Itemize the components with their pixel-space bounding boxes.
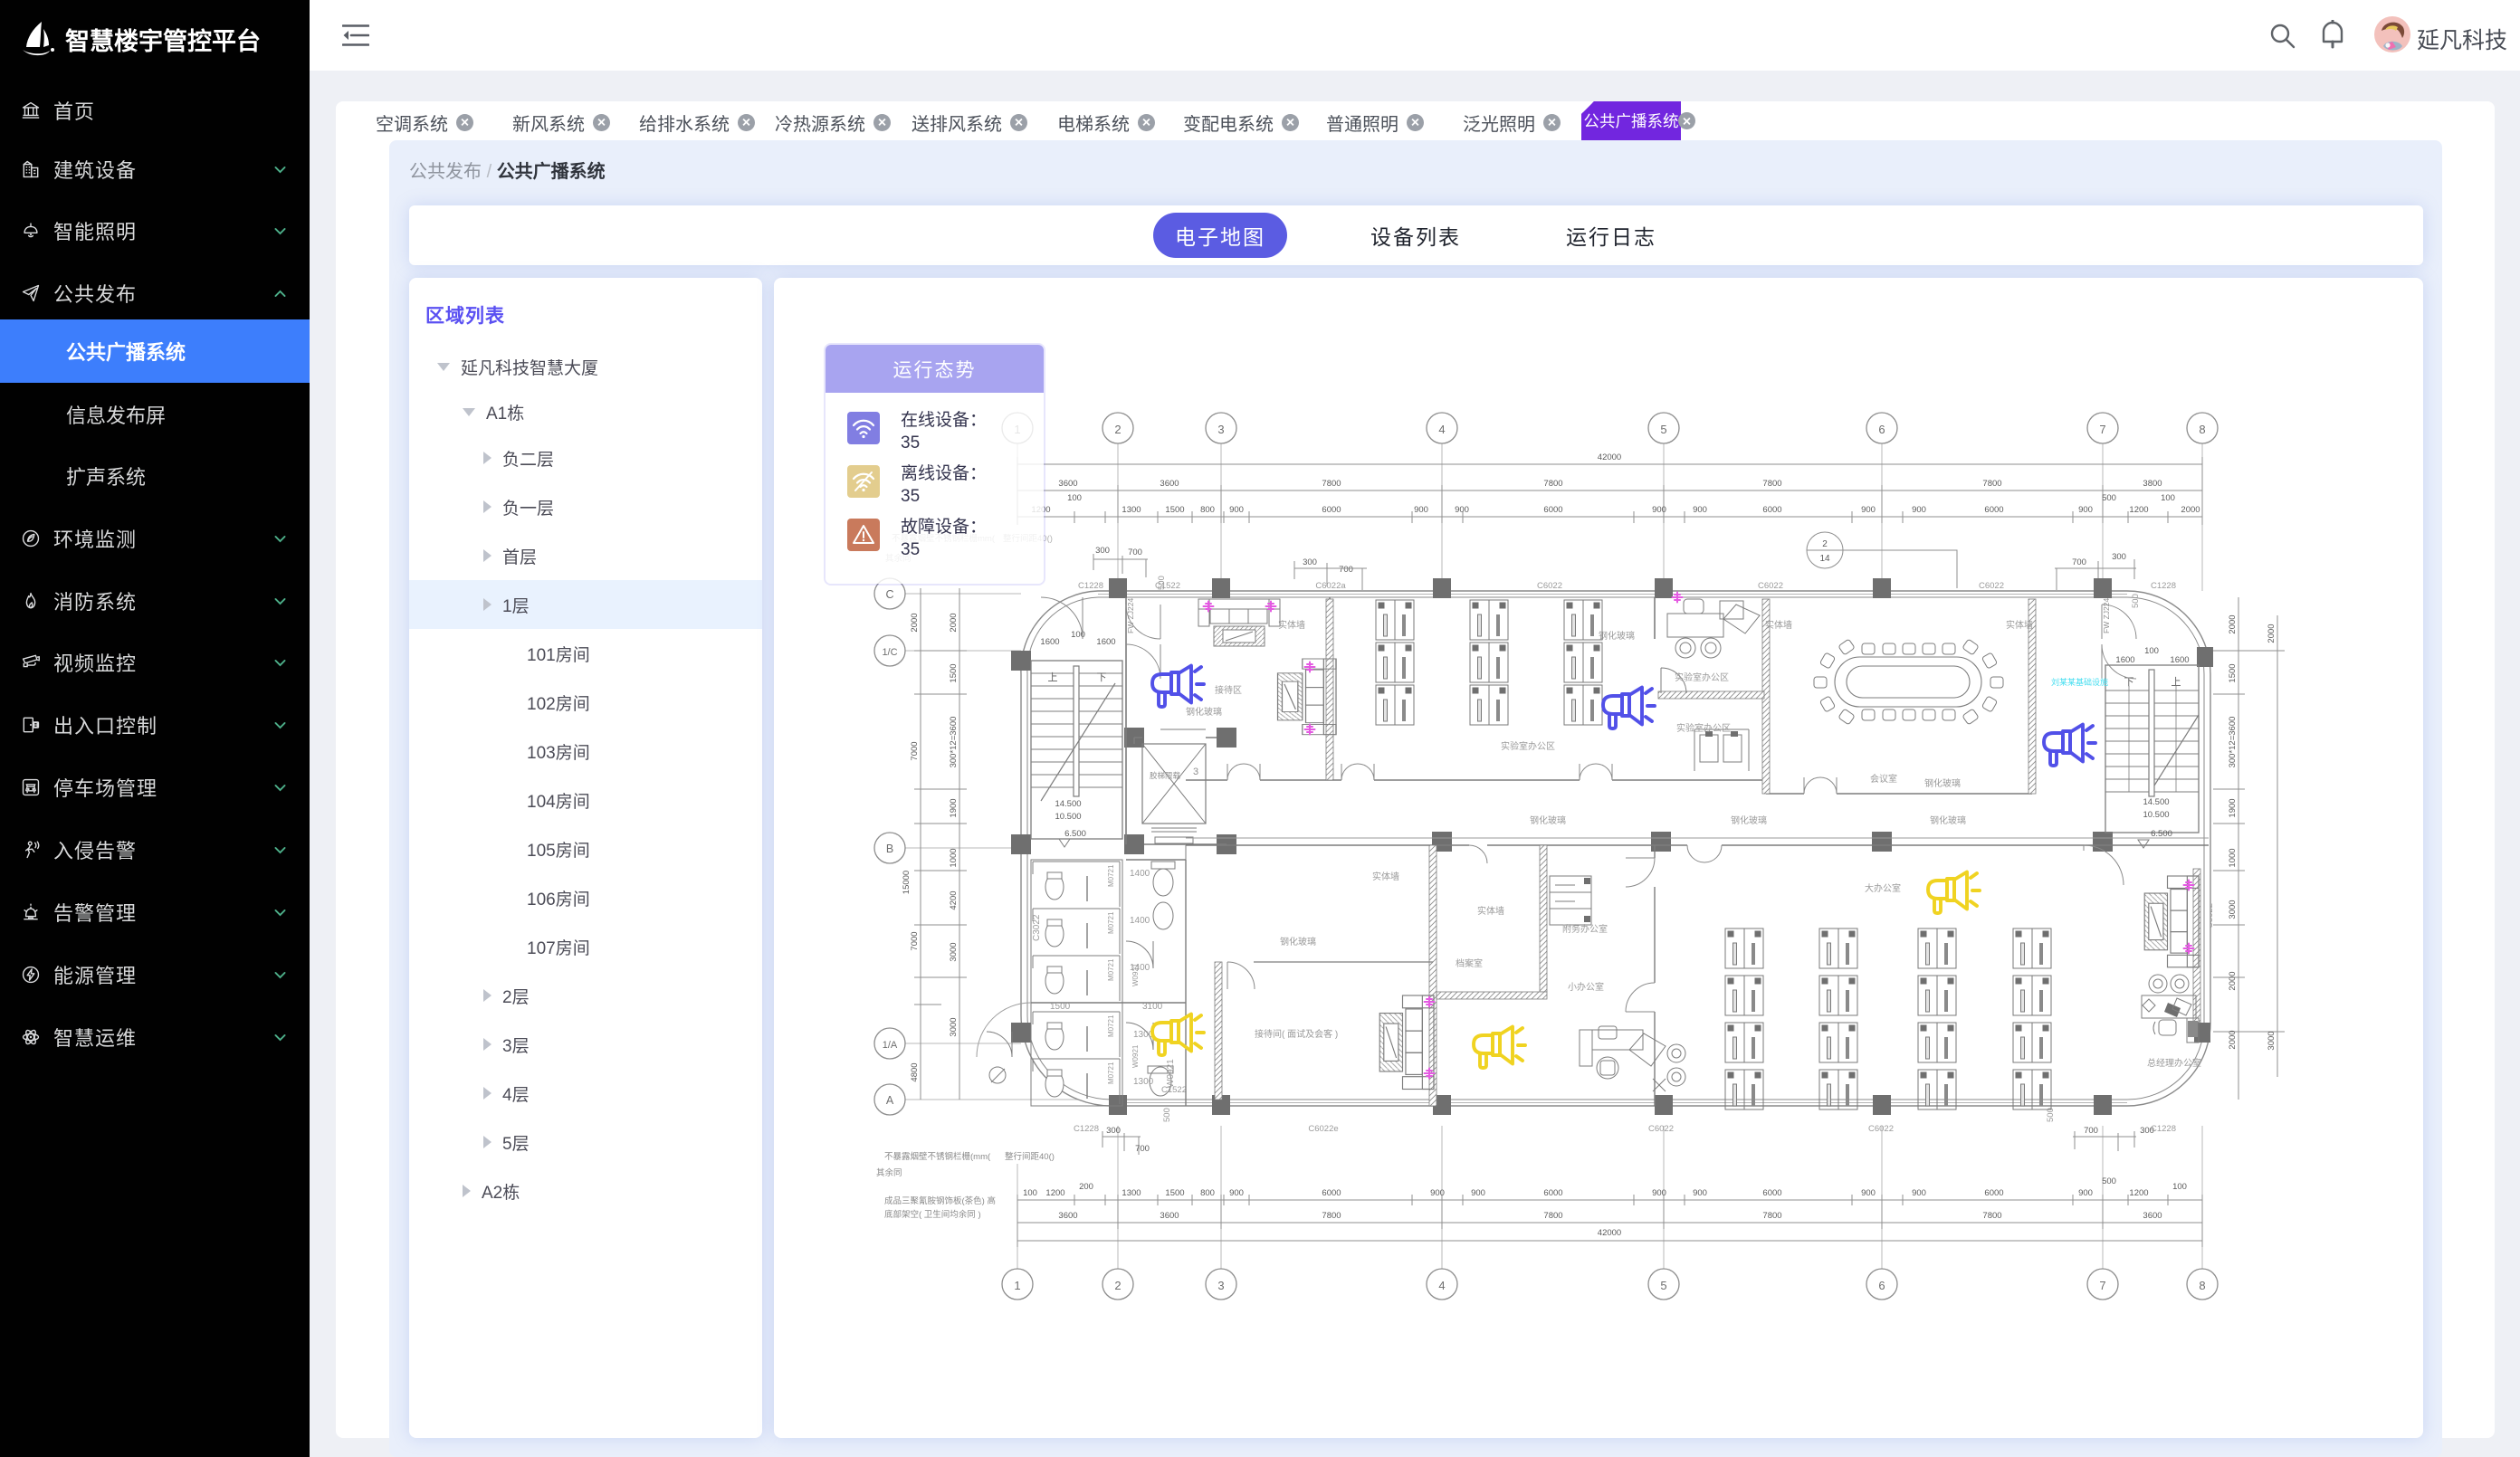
svg-text:下: 下 xyxy=(1097,672,1107,683)
svg-text:C6022: C6022 xyxy=(1868,1124,1894,1134)
svg-text:2: 2 xyxy=(1114,1279,1121,1292)
svg-text:900: 900 xyxy=(1471,1188,1485,1198)
svg-text:10.500: 10.500 xyxy=(2143,810,2169,820)
svg-text:3: 3 xyxy=(1217,423,1224,436)
svg-text:M0721: M0721 xyxy=(1107,1062,1115,1084)
svg-text:500: 500 xyxy=(1157,576,1167,590)
svg-text:300*12=3600: 300*12=3600 xyxy=(2228,717,2238,768)
svg-text:C6022: C6022 xyxy=(1758,581,1783,591)
svg-text:C3022: C3022 xyxy=(1032,914,1042,941)
svg-text:100: 100 xyxy=(2161,493,2175,503)
svg-text:FW ZJ224: FW ZJ224 xyxy=(2102,598,2111,633)
svg-text:800: 800 xyxy=(1200,1188,1215,1198)
svg-text:实体墙: 实体墙 xyxy=(2006,619,2033,631)
svg-text:FW ZJ224: FW ZJ224 xyxy=(1126,598,1135,633)
svg-text:成品三聚氰胺钢饰板(茶色) 高: 成品三聚氰胺钢饰板(茶色) 高 xyxy=(884,1195,996,1206)
svg-text:实验室办公区: 实验室办公区 xyxy=(1675,671,1729,683)
svg-text:1000: 1000 xyxy=(2228,848,2238,867)
svg-text:7800: 7800 xyxy=(1982,1211,2001,1221)
svg-text:C1228: C1228 xyxy=(1078,581,1103,591)
svg-text:1600: 1600 xyxy=(1096,637,1115,647)
svg-text:钢化玻璃: 钢化玻璃 xyxy=(1530,814,1566,826)
svg-text:1200: 1200 xyxy=(1045,1188,1064,1198)
svg-text:3000: 3000 xyxy=(2267,1031,2277,1050)
svg-text:会议室: 会议室 xyxy=(1870,773,1897,785)
svg-text:1900: 1900 xyxy=(2228,798,2238,817)
svg-text:钢化玻璃: 钢化玻璃 xyxy=(1280,936,1316,948)
svg-text:900: 900 xyxy=(1912,505,1926,515)
svg-text:其余同: 其余同 xyxy=(876,1167,902,1178)
svg-text:C6022: C6022 xyxy=(1979,581,2004,591)
svg-text:7800: 7800 xyxy=(1543,479,1562,489)
svg-text:900: 900 xyxy=(1912,1188,1926,1198)
svg-text:C1228: C1228 xyxy=(2151,1124,2176,1134)
svg-text:500: 500 xyxy=(2102,1176,2116,1186)
svg-text:1500: 1500 xyxy=(949,663,959,682)
svg-text:4: 4 xyxy=(1438,1279,1445,1292)
svg-text:1400: 1400 xyxy=(1130,869,1150,879)
svg-text:7800: 7800 xyxy=(1322,1211,1341,1221)
svg-text:6000: 6000 xyxy=(1984,1188,2003,1198)
svg-text:900: 900 xyxy=(1693,505,1707,515)
svg-text:M0721: M0721 xyxy=(1107,864,1115,887)
svg-text:2: 2 xyxy=(1822,539,1828,549)
svg-text:900: 900 xyxy=(1229,1188,1244,1198)
svg-text:钢化玻璃: 钢化玻璃 xyxy=(1924,777,1961,789)
svg-text:5: 5 xyxy=(1660,423,1666,436)
svg-text:C6022: C6022 xyxy=(1648,1124,1674,1134)
svg-text:7800: 7800 xyxy=(1762,1211,1781,1221)
svg-text:实体墙: 实体墙 xyxy=(1765,619,1792,631)
svg-text:7800: 7800 xyxy=(1543,1211,1562,1221)
svg-text:胶梯限载: 胶梯限载 xyxy=(1150,771,1181,780)
svg-text:2: 2 xyxy=(1114,423,1121,436)
svg-text:500: 500 xyxy=(2046,1108,2056,1122)
svg-text:900: 900 xyxy=(2078,1188,2093,1198)
svg-text:1500: 1500 xyxy=(1165,505,1184,515)
svg-text:实验室办公区: 实验室办公区 xyxy=(1501,740,1555,752)
svg-text:6000: 6000 xyxy=(1984,505,2003,515)
svg-text:300*12=3600: 300*12=3600 xyxy=(949,717,959,768)
svg-text:1: 1 xyxy=(1014,1279,1020,1292)
svg-text:900: 900 xyxy=(1861,505,1876,515)
svg-text:3000: 3000 xyxy=(949,942,959,961)
svg-text:档案室: 档案室 xyxy=(1456,957,1483,969)
svg-text:B: B xyxy=(886,843,893,855)
svg-text:刘某某基础设施: 刘某某基础设施 xyxy=(2051,677,2108,687)
svg-text:900: 900 xyxy=(2078,505,2093,515)
svg-text:14.500: 14.500 xyxy=(1055,799,1081,809)
svg-text:7000: 7000 xyxy=(910,741,920,760)
svg-text:4: 4 xyxy=(1438,423,1445,436)
svg-text:1900: 1900 xyxy=(949,798,959,817)
svg-text:1200: 1200 xyxy=(2129,1188,2148,1198)
svg-text:15000: 15000 xyxy=(902,871,912,894)
svg-text:14: 14 xyxy=(1819,554,1830,564)
svg-text:500: 500 xyxy=(2131,594,2141,608)
svg-text:1/A: 1/A xyxy=(883,1040,898,1051)
svg-text:300: 300 xyxy=(1106,1126,1121,1136)
svg-text:2000: 2000 xyxy=(2228,971,2238,990)
svg-text:42000: 42000 xyxy=(1598,1228,1621,1238)
svg-text:W0921: W0921 xyxy=(1166,1059,1176,1088)
svg-text:2000: 2000 xyxy=(949,613,959,632)
svg-text:100: 100 xyxy=(1023,1188,1037,1198)
svg-text:1400: 1400 xyxy=(1130,916,1150,926)
svg-text:5: 5 xyxy=(1660,1279,1666,1292)
svg-text:1500: 1500 xyxy=(1165,1188,1184,1198)
svg-text:700: 700 xyxy=(1128,548,1142,557)
svg-text:3600: 3600 xyxy=(1160,1211,1179,1221)
svg-text:900: 900 xyxy=(1455,505,1469,515)
svg-text:M0721: M0721 xyxy=(1107,911,1115,934)
svg-text:300: 300 xyxy=(2112,552,2126,562)
svg-text:大办公室: 大办公室 xyxy=(1865,882,1901,894)
svg-text:100: 100 xyxy=(2172,1182,2187,1192)
svg-text:7000: 7000 xyxy=(910,931,920,950)
svg-text:6000: 6000 xyxy=(1762,1188,1781,1198)
svg-text:C6022a: C6022a xyxy=(1315,581,1346,591)
svg-text:2000: 2000 xyxy=(2181,505,2200,515)
svg-text:W0921: W0921 xyxy=(1131,1044,1140,1068)
svg-text:2000: 2000 xyxy=(910,613,920,632)
svg-text:接待间( 面试及会客 ): 接待间( 面试及会客 ) xyxy=(1255,1028,1338,1040)
svg-text:小办公室: 小办公室 xyxy=(1568,981,1604,993)
svg-text:100: 100 xyxy=(1071,630,1085,640)
svg-text:1300: 1300 xyxy=(1122,1188,1141,1198)
svg-text:14.500: 14.500 xyxy=(2143,797,2169,807)
svg-text:钢化玻璃: 钢化玻璃 xyxy=(1930,814,1966,826)
svg-text:3000: 3000 xyxy=(2228,900,2238,919)
svg-text:700: 700 xyxy=(1135,1144,1150,1154)
svg-text:500: 500 xyxy=(1162,1108,1172,1122)
svg-text:6000: 6000 xyxy=(1322,1188,1341,1198)
svg-text:1500: 1500 xyxy=(1050,1002,1071,1012)
svg-text:C: C xyxy=(885,588,893,601)
svg-text:700: 700 xyxy=(1339,565,1353,575)
svg-text:接待区: 接待区 xyxy=(1215,684,1242,696)
svg-text:700: 700 xyxy=(2084,1126,2098,1136)
svg-text:1600: 1600 xyxy=(1040,637,1059,647)
svg-text:1300: 1300 xyxy=(1133,1077,1154,1087)
svg-text:底部架空( 卫生间均余同 ): 底部架空( 卫生间均余同 ) xyxy=(884,1209,981,1220)
svg-text:实验室办公区: 实验室办公区 xyxy=(1676,722,1731,734)
svg-text:6: 6 xyxy=(1878,1279,1885,1292)
svg-text:1000: 1000 xyxy=(949,848,959,867)
svg-text:C6022: C6022 xyxy=(1537,581,1562,591)
svg-text:900: 900 xyxy=(1861,1188,1876,1198)
svg-text:3600: 3600 xyxy=(1058,479,1077,489)
svg-text:900: 900 xyxy=(1430,1188,1445,1198)
svg-text:6000: 6000 xyxy=(1322,505,1341,515)
svg-text:900: 900 xyxy=(1414,505,1428,515)
svg-text:1500: 1500 xyxy=(2228,663,2238,682)
svg-text:800: 800 xyxy=(1200,505,1215,515)
svg-text:不暴露烟壁不锈钢栏栅(mm(: 不暴露烟壁不锈钢栏栅(mm( xyxy=(884,1151,991,1162)
svg-text:6.500: 6.500 xyxy=(2151,829,2172,839)
svg-text:100: 100 xyxy=(2144,646,2159,656)
svg-text:钢化玻璃: 钢化玻璃 xyxy=(1599,630,1635,642)
svg-text:3: 3 xyxy=(1193,767,1198,777)
svg-text:1/C: 1/C xyxy=(882,647,897,658)
svg-text:实体墙: 实体墙 xyxy=(1477,905,1504,917)
svg-text:上: 上 xyxy=(1048,671,1058,683)
svg-text:8: 8 xyxy=(2199,423,2205,436)
svg-text:200: 200 xyxy=(1079,1182,1093,1192)
svg-text:4800: 4800 xyxy=(910,1062,920,1081)
svg-text:A: A xyxy=(886,1094,894,1107)
svg-text:3600: 3600 xyxy=(1058,1211,1077,1221)
svg-text:7: 7 xyxy=(2099,423,2105,436)
svg-text:6000: 6000 xyxy=(1543,505,1562,515)
svg-text:C1228: C1228 xyxy=(2151,581,2176,591)
svg-text:3: 3 xyxy=(1217,1279,1224,1292)
svg-text:1600: 1600 xyxy=(2115,655,2134,665)
svg-text:整行间距40(): 整行间距40() xyxy=(1005,1151,1055,1162)
svg-text:3000: 3000 xyxy=(949,1017,959,1036)
svg-text:3600: 3600 xyxy=(2143,1211,2162,1221)
svg-text:2000: 2000 xyxy=(2267,624,2277,643)
svg-text:900: 900 xyxy=(1652,505,1666,515)
svg-text:500: 500 xyxy=(2102,493,2116,503)
svg-text:8: 8 xyxy=(2199,1279,2205,1292)
svg-text:700: 700 xyxy=(2072,557,2086,567)
svg-text:42000: 42000 xyxy=(1598,452,1621,462)
svg-text:6000: 6000 xyxy=(1762,505,1781,515)
svg-text:3100: 3100 xyxy=(1142,1002,1163,1012)
svg-text:M0721: M0721 xyxy=(1107,1014,1115,1037)
svg-text:300: 300 xyxy=(1095,546,1110,556)
svg-text:6000: 6000 xyxy=(1543,1188,1562,1198)
svg-text:M0721: M0721 xyxy=(1107,958,1115,981)
svg-text:10.500: 10.500 xyxy=(1055,812,1081,822)
svg-text:900: 900 xyxy=(1229,505,1244,515)
svg-text:7800: 7800 xyxy=(1322,479,1341,489)
svg-text:900: 900 xyxy=(1693,1188,1707,1198)
svg-text:总经理办公室: 总经理办公室 xyxy=(2147,1057,2201,1069)
svg-text:1400: 1400 xyxy=(1130,963,1150,973)
svg-text:7800: 7800 xyxy=(1982,479,2001,489)
svg-text:6.500: 6.500 xyxy=(1064,829,1086,839)
svg-text:C6022e: C6022e xyxy=(1308,1124,1338,1134)
svg-text:100: 100 xyxy=(1067,493,1082,503)
svg-text:7800: 7800 xyxy=(1762,479,1781,489)
svg-text:7: 7 xyxy=(2099,1279,2105,1292)
svg-text:2000: 2000 xyxy=(2228,614,2238,633)
svg-text:上: 上 xyxy=(2172,676,2181,688)
svg-text:钢化玻璃: 钢化玻璃 xyxy=(1186,706,1222,718)
svg-text:1600: 1600 xyxy=(2170,655,2189,665)
svg-text:附务办公室: 附务办公室 xyxy=(1562,923,1608,935)
svg-text:C1228: C1228 xyxy=(1074,1124,1099,1134)
svg-text:实体墙: 实体墙 xyxy=(1372,871,1399,882)
svg-text:钢化玻璃: 钢化玻璃 xyxy=(1731,814,1767,826)
svg-text:300: 300 xyxy=(1303,557,1317,567)
svg-text:1200: 1200 xyxy=(2129,505,2148,515)
svg-text:3800: 3800 xyxy=(2143,479,2162,489)
svg-text:4200: 4200 xyxy=(949,890,959,909)
svg-text:1300: 1300 xyxy=(1122,505,1141,515)
svg-text:实体墙: 实体墙 xyxy=(1278,619,1305,631)
svg-text:6: 6 xyxy=(1878,423,1885,436)
svg-text:900: 900 xyxy=(1652,1188,1666,1198)
svg-text:3600: 3600 xyxy=(1160,479,1179,489)
svg-text:2000: 2000 xyxy=(2228,1030,2238,1049)
